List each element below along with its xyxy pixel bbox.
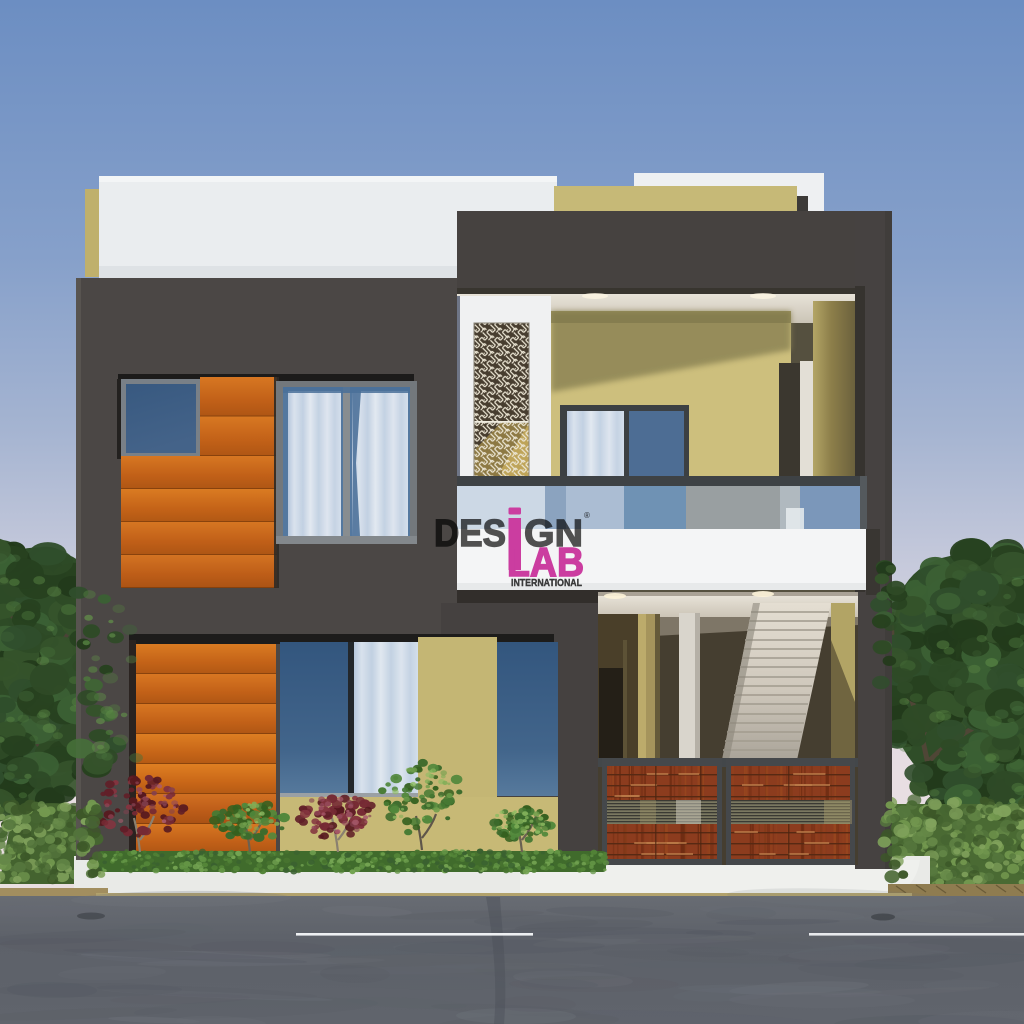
svg-text:INTERNATIONAL: INTERNATIONAL (511, 578, 582, 589)
svg-text:®: ® (584, 511, 590, 520)
svg-text:DES: DES (434, 513, 506, 555)
